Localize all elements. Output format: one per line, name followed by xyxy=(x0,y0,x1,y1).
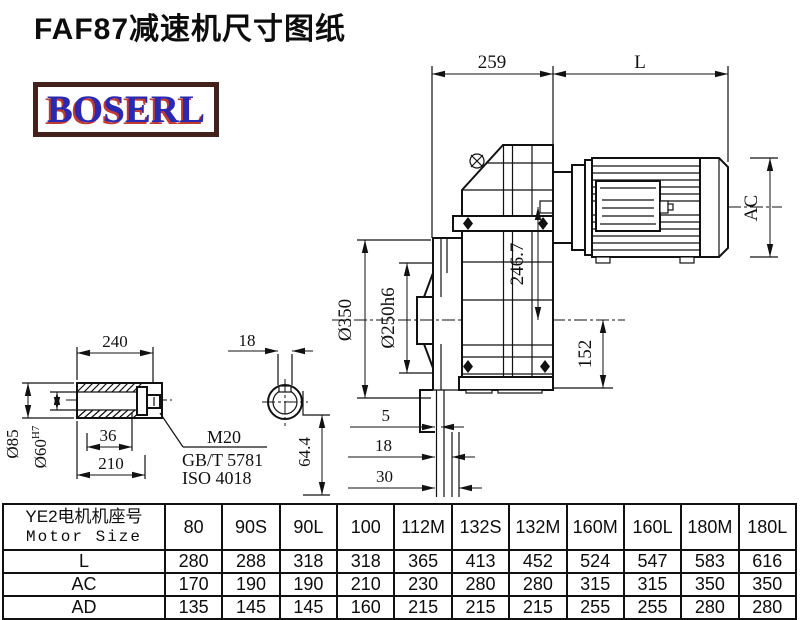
dim-64-4: 64.4 xyxy=(295,437,314,467)
page: { "page": { "title": "FAF87减速机尺寸图纸", "lo… xyxy=(0,0,800,614)
column-header: 180M xyxy=(681,504,738,550)
row-label: AD xyxy=(3,596,165,619)
dim-240: 240 xyxy=(102,332,128,351)
table-cell: 318 xyxy=(280,550,337,573)
table-cell: 255 xyxy=(567,596,624,619)
table-cell: 280 xyxy=(509,573,566,596)
table-cell: 255 xyxy=(624,596,681,619)
dim-spigot: Ø250h6 xyxy=(378,287,399,348)
dim-flange-od: Ø350 xyxy=(335,299,356,341)
table-cell: 210 xyxy=(337,573,394,596)
dim-30: 30 xyxy=(376,467,393,486)
table-cell: 583 xyxy=(681,550,738,573)
shaft-section-view: 240 Ø85 Ø60H7 36 210 M20 GB/T 5781 ISO 4… xyxy=(3,332,267,488)
dim-210: 210 xyxy=(98,454,124,473)
column-header: 180L xyxy=(739,504,796,550)
dim-18: 18 xyxy=(375,436,392,455)
dim-L: L xyxy=(634,52,646,73)
dim-5: 5 xyxy=(382,406,391,425)
table-cell: 318 xyxy=(337,550,394,573)
table-row-AD: AD 135 145 145 160 215 215 215 255 255 2… xyxy=(3,596,796,619)
table-cell: 145 xyxy=(222,596,279,619)
bolt-standard-iso: ISO 4018 xyxy=(182,468,252,488)
table-cell: 365 xyxy=(394,550,451,573)
table-cell: 280 xyxy=(739,596,796,619)
column-header: 160L xyxy=(624,504,681,550)
table-cell: 170 xyxy=(165,573,222,596)
table-cell: 215 xyxy=(452,596,509,619)
washer xyxy=(137,387,147,415)
dim-259: 259 xyxy=(478,52,507,73)
table-cell: 547 xyxy=(624,550,681,573)
column-header: 100 xyxy=(337,504,394,550)
table-row-L: L 280 288 318 318 365 413 452 524 547 58… xyxy=(3,550,796,573)
table-header-motor-size: YE2电机机座号 Motor Size xyxy=(3,504,165,550)
table-cell: 350 xyxy=(681,573,738,596)
table-cell: 145 xyxy=(280,596,337,619)
table-cell: 413 xyxy=(452,550,509,573)
dim-AC: AC xyxy=(741,195,762,221)
table-cell: 230 xyxy=(394,573,451,596)
table-cell: 288 xyxy=(222,550,279,573)
dim-key-width: 18 xyxy=(239,331,256,350)
keyway-section-view: 18 xyxy=(228,331,313,426)
table-cell: 350 xyxy=(739,573,796,596)
row-label: AC xyxy=(3,573,165,596)
fan-cover xyxy=(700,158,728,257)
table-cell: 135 xyxy=(165,596,222,619)
column-header: 90L xyxy=(280,504,337,550)
dim-36: 36 xyxy=(100,426,117,445)
table-cell: 280 xyxy=(681,596,738,619)
bolt-callout: M20 xyxy=(207,427,241,447)
bottom-offset-dimensions: 64.4 5 18 30 xyxy=(295,391,482,495)
table-cell: 190 xyxy=(222,573,279,596)
table-row-AC: AC 170 190 190 210 230 280 280 315 315 3… xyxy=(3,573,796,596)
table-cell: 315 xyxy=(567,573,624,596)
dim-246-7: 246.7 xyxy=(507,243,528,286)
technical-drawing: 259 L xyxy=(0,0,800,505)
table-cell: 190 xyxy=(280,573,337,596)
dim-shaft-od: Ø85 xyxy=(3,429,22,458)
column-header: 112M xyxy=(394,504,451,550)
table-cell: 315 xyxy=(624,573,681,596)
motor-size-table: YE2电机机座号 Motor Size 80 90S 90L 100 112M … xyxy=(2,503,797,620)
table-cell: 280 xyxy=(452,573,509,596)
dim-bore: Ø60H7 xyxy=(30,425,50,468)
row-label: L xyxy=(3,550,165,573)
column-header: 160M xyxy=(567,504,624,550)
table-cell: 215 xyxy=(394,596,451,619)
column-header: 90S xyxy=(222,504,279,550)
table-cell: 524 xyxy=(567,550,624,573)
table-cell: 215 xyxy=(509,596,566,619)
table-cell: 280 xyxy=(165,550,222,573)
dim-152: 152 xyxy=(575,340,596,369)
flange-view xyxy=(417,238,462,497)
table-header-row: YE2电机机座号 Motor Size 80 90S 90L 100 112M … xyxy=(3,504,796,550)
flange-dimensions: Ø350 Ø250h6 xyxy=(335,240,433,398)
table-cell: 452 xyxy=(509,550,566,573)
table-cell: 616 xyxy=(739,550,796,573)
motor-view: AC xyxy=(540,158,778,263)
column-header: 80 xyxy=(165,504,222,550)
column-header: 132M xyxy=(509,504,566,550)
bolt-standard-gb: GB/T 5781 xyxy=(182,450,263,470)
column-header: 132S xyxy=(452,504,509,550)
table-cell: 160 xyxy=(337,596,394,619)
